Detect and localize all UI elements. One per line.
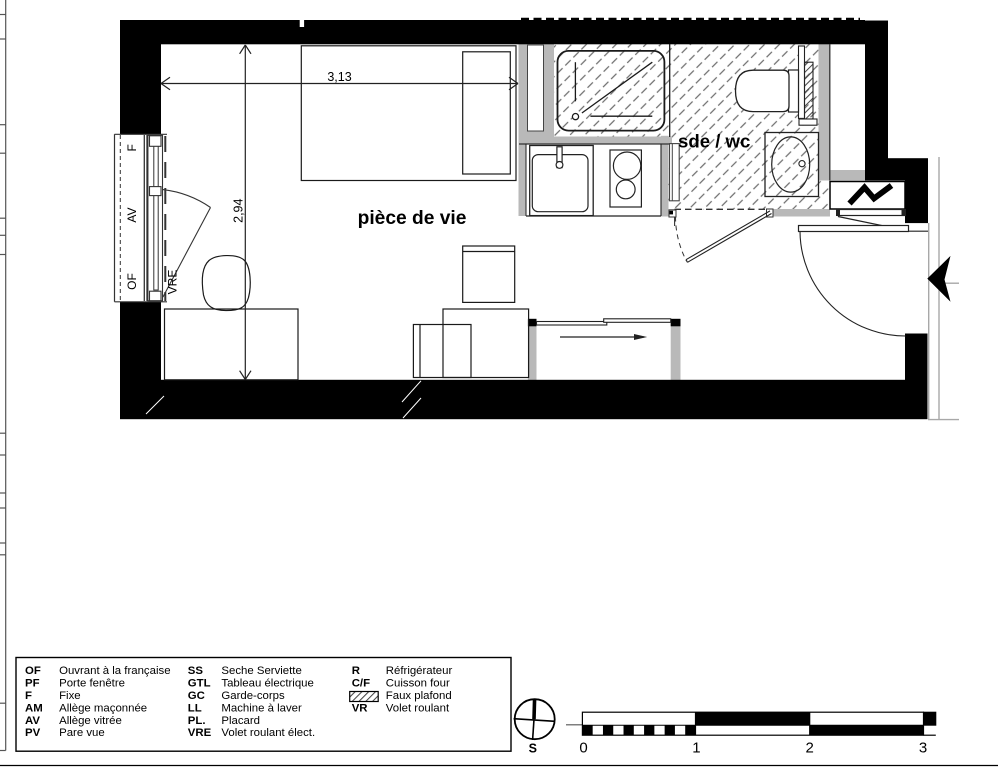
svg-text:1: 1 [692,740,700,757]
svg-text:VR: VR [352,702,368,714]
svg-text:R: R [352,665,360,677]
svg-text:sde / wc: sde / wc [678,131,750,152]
svg-text:Cuisson four: Cuisson four [386,678,450,690]
svg-text:2: 2 [806,740,814,757]
svg-text:0: 0 [579,740,587,757]
svg-text:VRE: VRE [166,270,180,295]
svg-text:3,13: 3,13 [327,70,351,84]
svg-text:Allège vitrée: Allège vitrée [59,715,122,727]
svg-text:F: F [125,144,139,151]
svg-text:GTL: GTL [188,678,211,690]
svg-text:2,94: 2,94 [232,198,246,222]
svg-text:S: S [529,741,537,755]
svg-text:AV: AV [25,715,40,727]
svg-text:Réfrigérateur: Réfrigérateur [386,665,453,677]
svg-text:PV: PV [25,727,41,739]
svg-text:SS: SS [188,665,204,677]
svg-text:Tableau électrique: Tableau électrique [221,678,313,690]
svg-text:3: 3 [919,740,927,757]
svg-text:LL: LL [188,702,202,714]
svg-text:GC: GC [188,690,205,702]
svg-text:Fixe: Fixe [59,690,81,702]
svg-text:VRE: VRE [188,727,212,739]
svg-text:OF: OF [125,273,139,290]
svg-text:Garde-corps: Garde-corps [221,690,285,702]
svg-text:AV: AV [125,207,139,222]
svg-text:Volet roulant: Volet roulant [386,702,450,714]
svg-text:OF: OF [25,665,41,677]
svg-text:PL.: PL. [188,715,206,727]
svg-text:Seche Serviette: Seche Serviette [221,665,301,677]
svg-text:Placard: Placard [221,715,260,727]
svg-text:Allège maçonnée: Allège maçonnée [59,702,147,714]
svg-text:Machine à laver: Machine à laver [221,702,302,714]
svg-text:Porte fenêtre: Porte fenêtre [59,678,125,690]
svg-text:Faux plafond: Faux plafond [386,690,452,702]
svg-text:Ouvrant à la française: Ouvrant à la française [59,665,170,677]
svg-text:AM: AM [25,702,43,714]
svg-text:Volet roulant élect.: Volet roulant élect. [221,727,315,739]
svg-text:pièce de vie: pièce de vie [358,208,467,229]
svg-text:F: F [25,690,32,702]
svg-text:C/F: C/F [352,678,370,690]
svg-text:PF: PF [25,678,40,690]
svg-text:Pare vue: Pare vue [59,727,105,739]
